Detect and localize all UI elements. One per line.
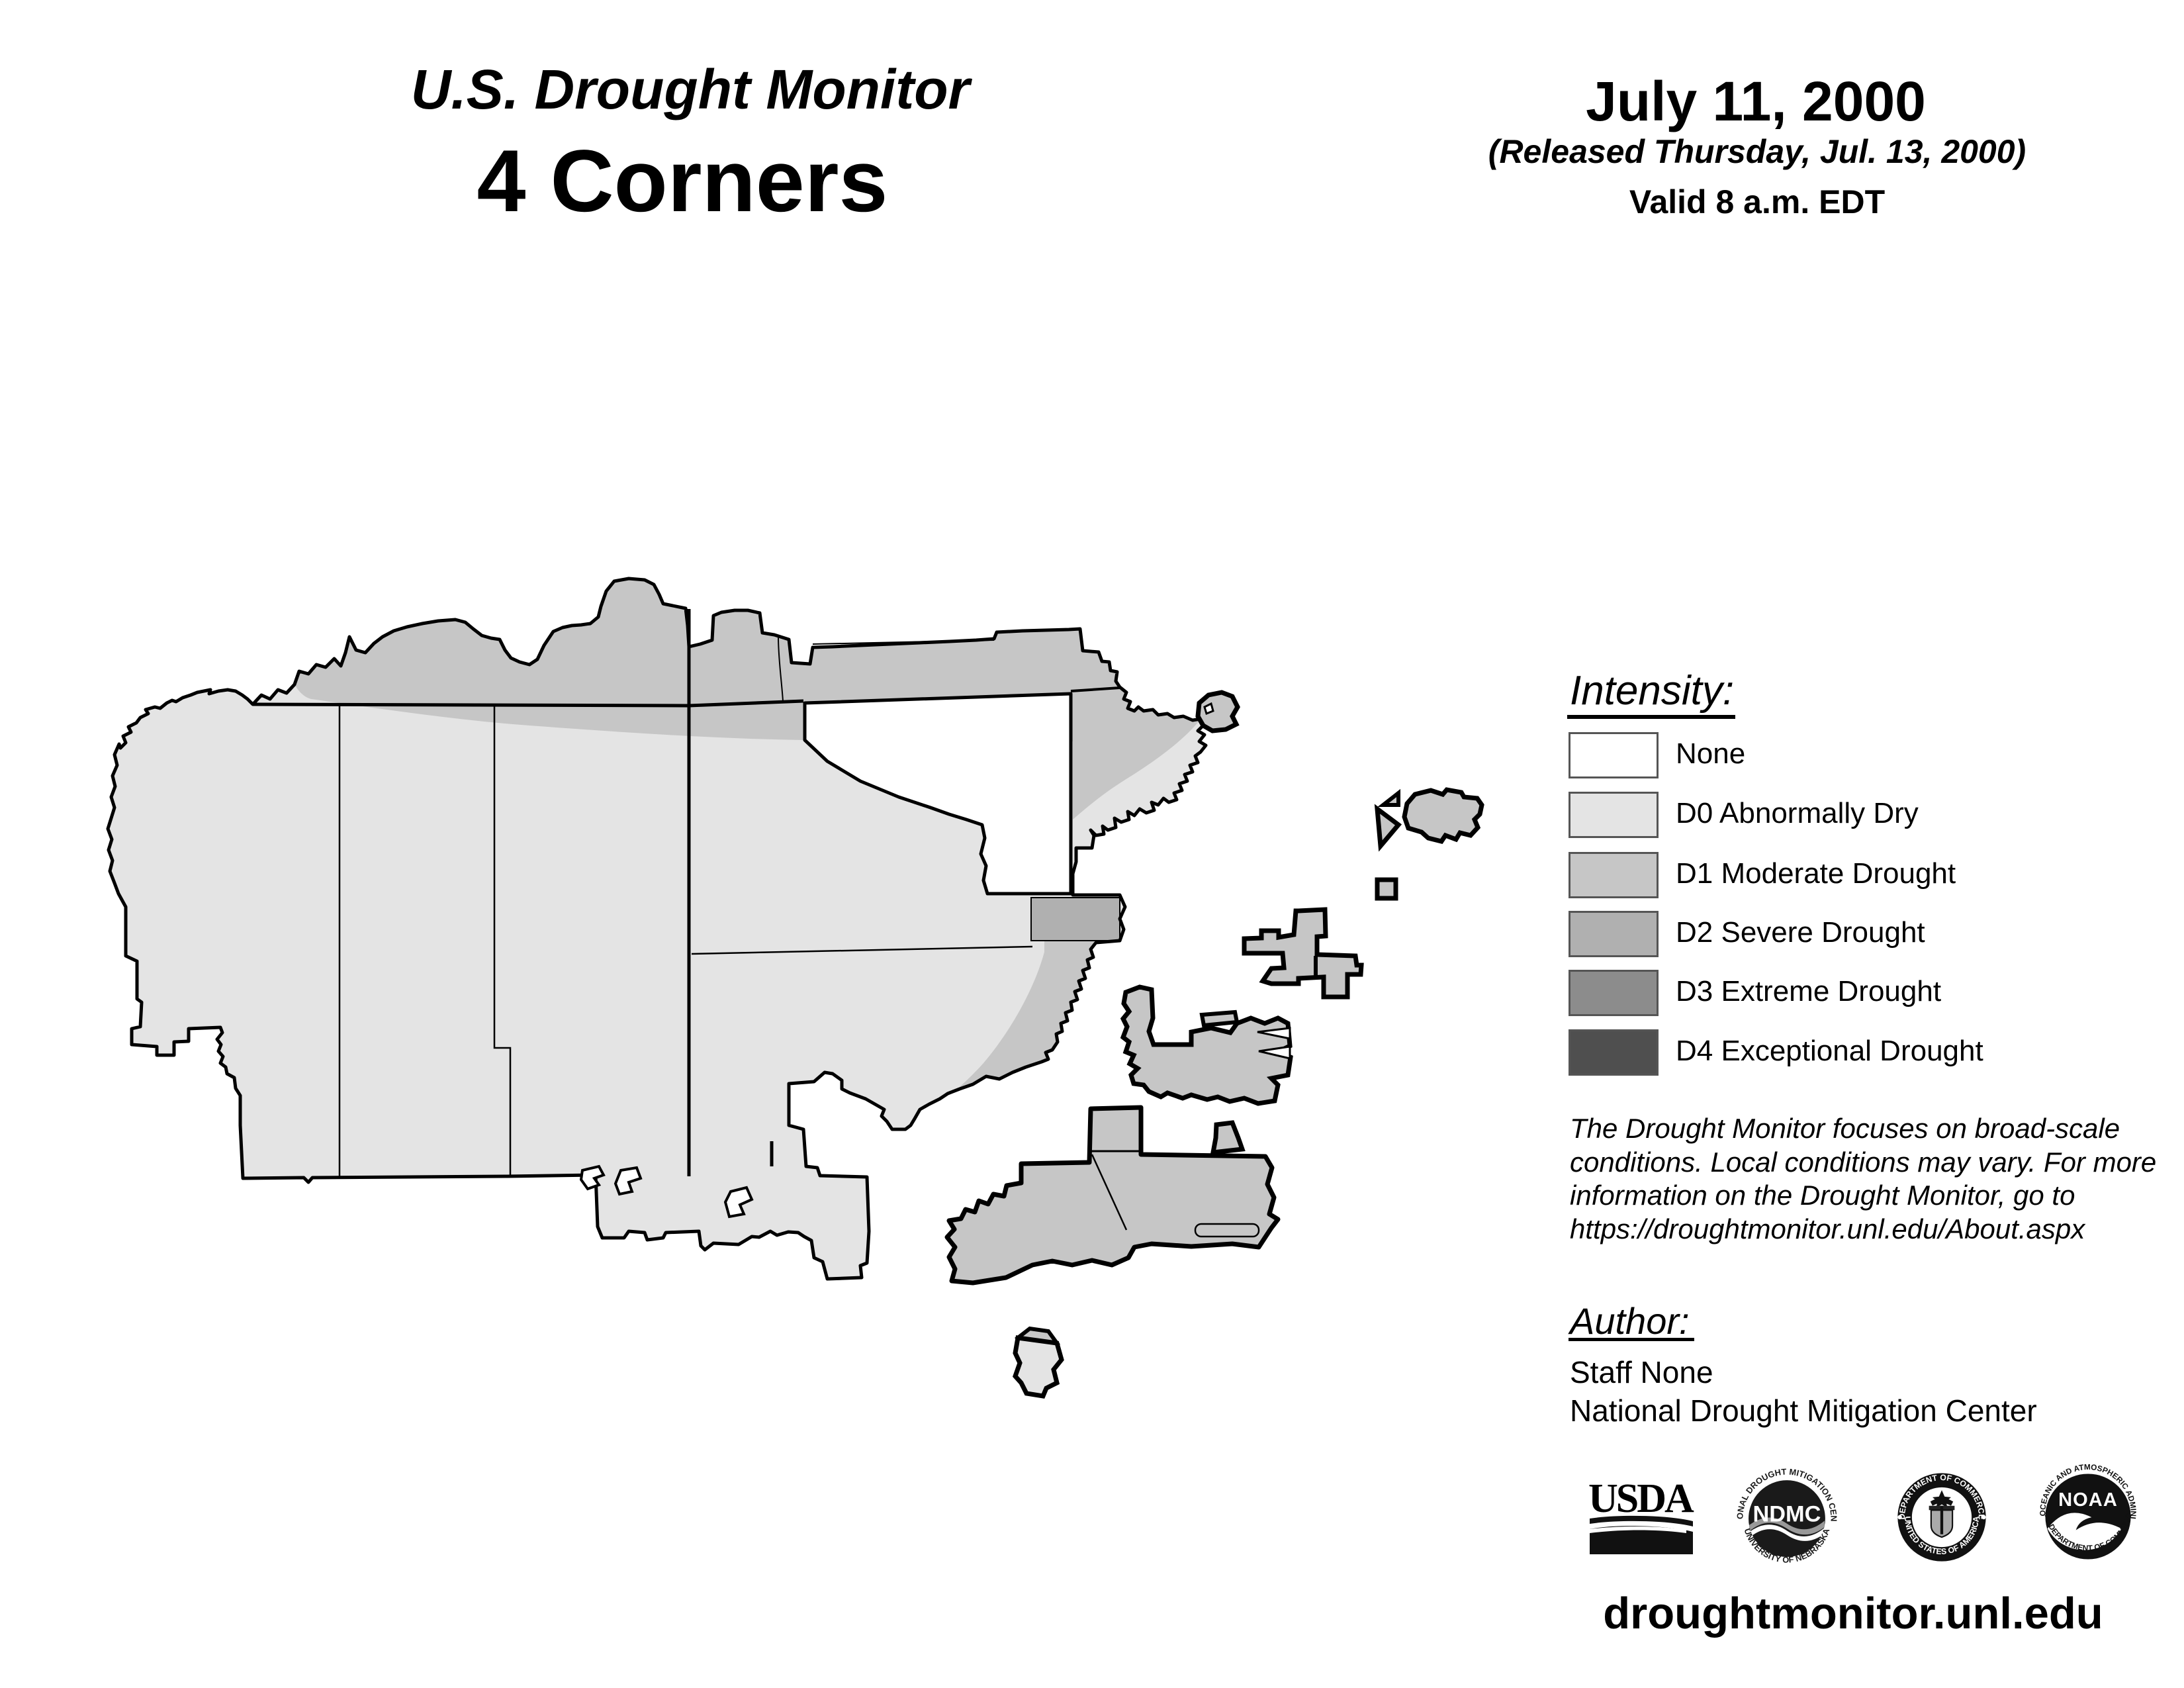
svg-text:USDA: USDA (1588, 1479, 1694, 1521)
svg-text:NDMC: NDMC (1753, 1501, 1821, 1526)
svg-text:NOAA: NOAA (2058, 1489, 2118, 1511)
